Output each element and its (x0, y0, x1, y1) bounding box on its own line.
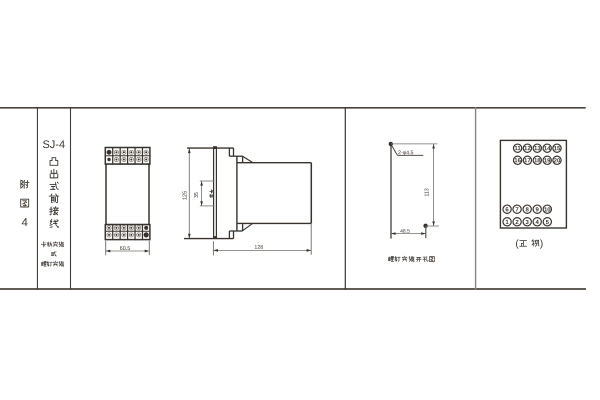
svg-text:10: 10 (544, 207, 551, 213)
svg-text:35: 35 (194, 192, 200, 198)
svg-text:60.5: 60.5 (120, 246, 131, 252)
svg-text:13: 13 (534, 146, 541, 152)
svg-text:11: 11 (514, 146, 521, 152)
svg-text:48.5: 48.5 (400, 229, 410, 235)
svg-text:128: 128 (254, 245, 263, 251)
svg-text:113: 113 (424, 188, 430, 196)
svg-text:20: 20 (554, 158, 561, 164)
svg-text:125: 125 (183, 191, 189, 200)
svg-text:2-φ4.5: 2-φ4.5 (398, 150, 414, 156)
svg-text:18: 18 (534, 158, 541, 164)
svg-text:16: 16 (514, 158, 521, 164)
svg-text:12: 12 (524, 146, 531, 152)
svg-text:4: 4 (22, 217, 28, 229)
svg-text:14: 14 (544, 146, 551, 152)
svg-text:SJ-4: SJ-4 (42, 139, 65, 151)
svg-text:(: ( (515, 239, 519, 250)
svg-text:): ) (540, 239, 543, 250)
svg-text:17: 17 (524, 158, 531, 164)
svg-text:15: 15 (554, 146, 561, 152)
svg-text:19: 19 (544, 158, 551, 164)
